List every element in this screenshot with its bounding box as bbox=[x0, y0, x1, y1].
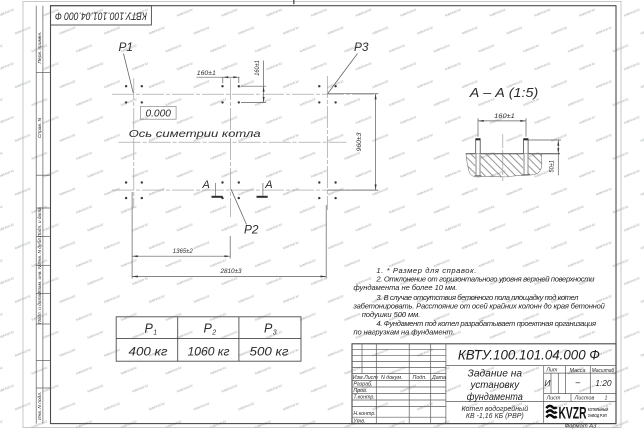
svg-text:Масса: Масса bbox=[570, 368, 586, 374]
svg-text:подушки 500 мм.: подушки 500 мм. bbox=[362, 310, 421, 319]
svg-text:Подп. и дата: Подп. и дата bbox=[37, 207, 43, 237]
svg-text:А: А bbox=[264, 179, 272, 191]
svg-text:фундамента: фундамента bbox=[467, 391, 523, 403]
svg-text:Формат А3: Формат А3 bbox=[565, 423, 597, 429]
svg-text:А: А bbox=[202, 179, 210, 191]
svg-text:960±3: 960±3 bbox=[356, 132, 363, 151]
svg-text:Разраб.: Разраб. bbox=[353, 382, 372, 388]
svg-text:P: P bbox=[264, 322, 273, 336]
svg-text:Т.контр.: Т.контр. bbox=[353, 395, 374, 401]
svg-text:по нагрузкам на фундамент.: по нагрузкам на фундамент. bbox=[353, 327, 454, 336]
svg-text:Пров.: Пров. bbox=[353, 388, 367, 394]
svg-text:Масштаб: Масштаб bbox=[592, 368, 615, 374]
svg-text:Инв. N подл.: Инв. N подл. bbox=[37, 392, 43, 420]
svg-text:P3: P3 bbox=[354, 40, 369, 54]
svg-text:500 кг: 500 кг bbox=[250, 344, 289, 358]
svg-text:160±1: 160±1 bbox=[254, 60, 261, 76]
svg-text:И: И bbox=[544, 378, 551, 388]
svg-text:N докум.: N докум. bbox=[381, 375, 402, 381]
svg-text:P: P bbox=[204, 322, 213, 336]
svg-text:1365±2: 1365±2 bbox=[173, 248, 193, 255]
svg-text:160±1: 160±1 bbox=[197, 70, 216, 77]
svg-text:Изм.Лист: Изм.Лист bbox=[353, 375, 379, 381]
svg-text:50±1: 50±1 bbox=[548, 160, 555, 173]
svg-text:0.000: 0.000 bbox=[145, 109, 171, 120]
svg-text:Подп. и дата: Подп. и дата bbox=[37, 293, 43, 323]
svg-text:2: 2 bbox=[211, 330, 216, 337]
svg-text:Задание на: Задание на bbox=[468, 367, 523, 379]
svg-text:Н.контр.: Н.контр. bbox=[353, 411, 375, 417]
svg-text:Справ. N: Справ. N bbox=[37, 117, 43, 138]
svg-text:1060 кг: 1060 кг bbox=[188, 344, 230, 358]
svg-text:P: P bbox=[145, 322, 154, 336]
svg-text:1: 1 bbox=[605, 396, 608, 402]
svg-text:P1: P1 bbox=[119, 40, 134, 54]
svg-text:400 кг: 400 кг bbox=[129, 344, 168, 358]
svg-text:KVZR: KVZR bbox=[559, 405, 587, 423]
svg-text:1:20: 1:20 bbox=[595, 378, 612, 388]
svg-text:КВТУ.100.101.04.000 Ф: КВТУ.100.101.04.000 Ф bbox=[55, 9, 147, 21]
svg-text:Лит: Лит bbox=[545, 368, 558, 374]
svg-text:Лист: Лист bbox=[546, 396, 561, 402]
svg-text:КВ -1,16 КБ (РВР): КВ -1,16 КБ (РВР) bbox=[466, 413, 524, 420]
svg-text:Листов: Листов bbox=[574, 396, 595, 402]
svg-text:КВТУ.100.101.04.000 Ф: КВТУ.100.101.04.000 Ф bbox=[458, 346, 600, 362]
svg-text:КОТЕЛЬНЫЙ: КОТЕЛЬНЫЙ bbox=[588, 405, 609, 412]
svg-text:установку: установку bbox=[470, 379, 520, 391]
svg-text:–: – bbox=[575, 377, 581, 387]
svg-text:2810±3: 2810±3 bbox=[220, 268, 242, 275]
svg-text:Утв.: Утв. bbox=[353, 418, 365, 424]
svg-text:А – А (1:5): А – А (1:5) bbox=[469, 85, 539, 100]
svg-text:фундамента не более 10 мм.: фундамента не более 10 мм. bbox=[353, 283, 457, 292]
svg-text:Котел водогрейный: Котел водогрейный bbox=[462, 405, 529, 413]
svg-text:160±1: 160±1 bbox=[494, 113, 515, 120]
svg-text:1: 1 bbox=[153, 330, 157, 337]
svg-text:Перв. примен.: Перв. примен. bbox=[37, 32, 43, 64]
svg-text:3: 3 bbox=[273, 330, 277, 337]
svg-text:забетонировать. Расстояние от: забетонировать. Расстояние от осей крайн… bbox=[352, 301, 605, 310]
svg-text:ЗАВОД РЭП: ЗАВОД РЭП bbox=[588, 413, 607, 418]
svg-text:Инв. N дубл.: Инв. N дубл. bbox=[37, 237, 43, 265]
svg-text:Ось симетрии котла: Ось симетрии котла bbox=[129, 129, 261, 140]
svg-text:Дата: Дата bbox=[431, 375, 446, 381]
svg-text:Взам. инв. N: Взам. инв. N bbox=[37, 265, 43, 293]
svg-text:Подп.: Подп. bbox=[413, 375, 427, 381]
